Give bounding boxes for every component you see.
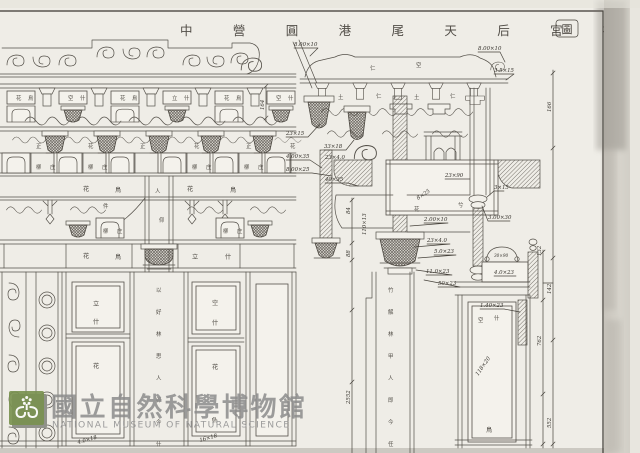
svg-text:花: 花 bbox=[83, 252, 89, 260]
svg-text:762: 762 bbox=[537, 335, 543, 346]
svg-text:林: 林 bbox=[388, 330, 394, 338]
svg-text:30×90: 30×90 bbox=[494, 253, 509, 258]
svg-text:庄: 庄 bbox=[102, 163, 108, 171]
svg-text:什: 什 bbox=[225, 253, 231, 261]
svg-text:正: 正 bbox=[246, 143, 252, 150]
svg-text:空: 空 bbox=[68, 94, 73, 102]
svg-text:立: 立 bbox=[93, 300, 99, 308]
svg-text:8.00×10: 8.00×10 bbox=[478, 46, 502, 52]
svg-text:花: 花 bbox=[88, 142, 94, 150]
svg-text:柳: 柳 bbox=[244, 163, 249, 171]
svg-text:花: 花 bbox=[83, 185, 89, 193]
svg-text:花: 花 bbox=[93, 362, 99, 370]
svg-text:以: 以 bbox=[156, 288, 162, 294]
svg-text:人: 人 bbox=[388, 375, 394, 382]
svg-text:84: 84 bbox=[346, 207, 352, 214]
svg-text:人: 人 bbox=[156, 375, 162, 382]
svg-text:柳: 柳 bbox=[88, 163, 93, 171]
svg-text:23×15: 23×15 bbox=[285, 131, 305, 137]
svg-text:思: 思 bbox=[156, 353, 162, 360]
svg-text:任: 任 bbox=[388, 440, 394, 448]
svg-text:花: 花 bbox=[224, 94, 230, 102]
svg-text:仁: 仁 bbox=[370, 64, 376, 72]
svg-text:110×13: 110×13 bbox=[362, 213, 368, 235]
svg-text:5.0×23: 5.0×23 bbox=[434, 249, 455, 255]
svg-text:庄: 庄 bbox=[237, 227, 243, 235]
svg-text:花: 花 bbox=[290, 142, 296, 150]
svg-text:柳: 柳 bbox=[103, 227, 108, 235]
title-seal-char: 圖 bbox=[562, 23, 573, 36]
svg-text:柳: 柳 bbox=[36, 163, 41, 171]
svg-text:8.00×25: 8.00×25 bbox=[286, 167, 310, 173]
svg-text:庄: 庄 bbox=[258, 163, 264, 171]
svg-text:土: 土 bbox=[414, 93, 420, 101]
scanned-drawing-page: 中 營 圓 港 尾 天 后 宮 神 房 設 計 圖 花鳥 空什 花鳥 立什 花鳥… bbox=[0, 0, 640, 453]
svg-text:鳥: 鳥 bbox=[132, 94, 138, 102]
watermark-en-text: NATIONAL MUSEUM OF NATURAL SCIENCE bbox=[52, 420, 290, 431]
svg-text:4.0×23: 4.0×23 bbox=[493, 270, 515, 276]
svg-text:件: 件 bbox=[103, 202, 109, 210]
svg-text:164: 164 bbox=[260, 99, 266, 110]
svg-text:正: 正 bbox=[140, 143, 146, 150]
svg-text:23×90: 23×90 bbox=[444, 173, 464, 179]
svg-text:2552: 2552 bbox=[346, 390, 352, 405]
svg-text:空: 空 bbox=[416, 61, 421, 69]
svg-text:空: 空 bbox=[276, 94, 281, 102]
svg-text:花: 花 bbox=[187, 185, 193, 193]
svg-text:解: 解 bbox=[388, 308, 394, 316]
svg-text:什: 什 bbox=[80, 94, 86, 102]
svg-text:仁: 仁 bbox=[450, 92, 456, 100]
svg-text:花: 花 bbox=[194, 142, 200, 150]
museum-watermark: 國立自然科學博物館 NATIONAL MUSEUM OF NATURAL SCI… bbox=[9, 391, 308, 431]
svg-text:23×4.0: 23×4.0 bbox=[426, 238, 448, 244]
svg-text:鳥: 鳥 bbox=[236, 94, 242, 102]
svg-text:什: 什 bbox=[93, 318, 99, 326]
watermark-cjk-text: 國立自然科學博物館 bbox=[51, 392, 308, 423]
svg-text:552: 552 bbox=[547, 417, 553, 428]
svg-text:正: 正 bbox=[36, 143, 42, 150]
svg-text:甲: 甲 bbox=[388, 353, 393, 360]
svg-text:鳥: 鳥 bbox=[115, 253, 121, 261]
svg-text:8.00×10: 8.00×10 bbox=[294, 42, 318, 48]
svg-text:庄: 庄 bbox=[117, 227, 123, 235]
svg-text:土: 土 bbox=[338, 93, 344, 101]
svg-text:鳥: 鳥 bbox=[115, 186, 121, 194]
svg-text:仁: 仁 bbox=[376, 92, 382, 100]
svg-text:什: 什 bbox=[288, 94, 294, 102]
svg-text:今: 今 bbox=[388, 418, 394, 426]
svg-text:花: 花 bbox=[212, 363, 218, 371]
svg-text:什: 什 bbox=[184, 94, 190, 102]
svg-text:2.00×10: 2.00×10 bbox=[423, 217, 448, 223]
svg-text:166: 166 bbox=[547, 101, 553, 112]
svg-text:林: 林 bbox=[156, 330, 162, 338]
svg-text:3.00×30: 3.00×30 bbox=[488, 215, 512, 221]
svg-text:什: 什 bbox=[156, 440, 162, 448]
svg-text:庄: 庄 bbox=[206, 163, 212, 171]
svg-text:竹: 竹 bbox=[388, 286, 394, 294]
svg-text:立: 立 bbox=[172, 94, 178, 102]
svg-text:33×18: 33×18 bbox=[324, 144, 343, 150]
svg-text:3.5×15: 3.5×15 bbox=[494, 68, 515, 74]
svg-text:什: 什 bbox=[212, 319, 218, 327]
svg-text:柳: 柳 bbox=[192, 163, 197, 171]
svg-text:40×35: 40×35 bbox=[324, 177, 344, 183]
svg-text:立: 立 bbox=[192, 253, 198, 261]
svg-text:鳥: 鳥 bbox=[28, 94, 34, 102]
svg-text:88: 88 bbox=[346, 250, 352, 257]
svg-text:4.00×35: 4.00×35 bbox=[285, 154, 310, 160]
svg-text:鳥: 鳥 bbox=[486, 426, 492, 434]
svg-text:空: 空 bbox=[478, 316, 483, 324]
svg-text:人: 人 bbox=[155, 188, 161, 195]
svg-text:23×4.0: 23×4.0 bbox=[324, 155, 346, 161]
svg-text:花: 花 bbox=[120, 94, 126, 102]
svg-text:兮: 兮 bbox=[458, 201, 464, 209]
svg-text:柳: 柳 bbox=[223, 227, 228, 235]
svg-text:什: 什 bbox=[494, 314, 500, 322]
svg-text:好: 好 bbox=[156, 308, 162, 316]
svg-text:庄: 庄 bbox=[50, 163, 56, 171]
svg-text:空: 空 bbox=[212, 299, 218, 307]
svg-text:仰: 仰 bbox=[159, 216, 164, 224]
svg-text:鳥: 鳥 bbox=[230, 186, 236, 194]
svg-text:即: 即 bbox=[388, 397, 393, 404]
svg-text:142: 142 bbox=[547, 283, 553, 294]
drawing-canvas: 中 營 圓 港 尾 天 后 宮 神 房 設 計 圖 花鳥 空什 花鳥 立什 花鳥… bbox=[0, 0, 640, 453]
svg-text:花: 花 bbox=[16, 94, 22, 102]
svg-text:132: 132 bbox=[537, 245, 543, 256]
svg-text:花: 花 bbox=[414, 205, 420, 213]
svg-text:3×15: 3×15 bbox=[494, 185, 509, 191]
svg-text:1.40×23: 1.40×23 bbox=[480, 303, 504, 309]
